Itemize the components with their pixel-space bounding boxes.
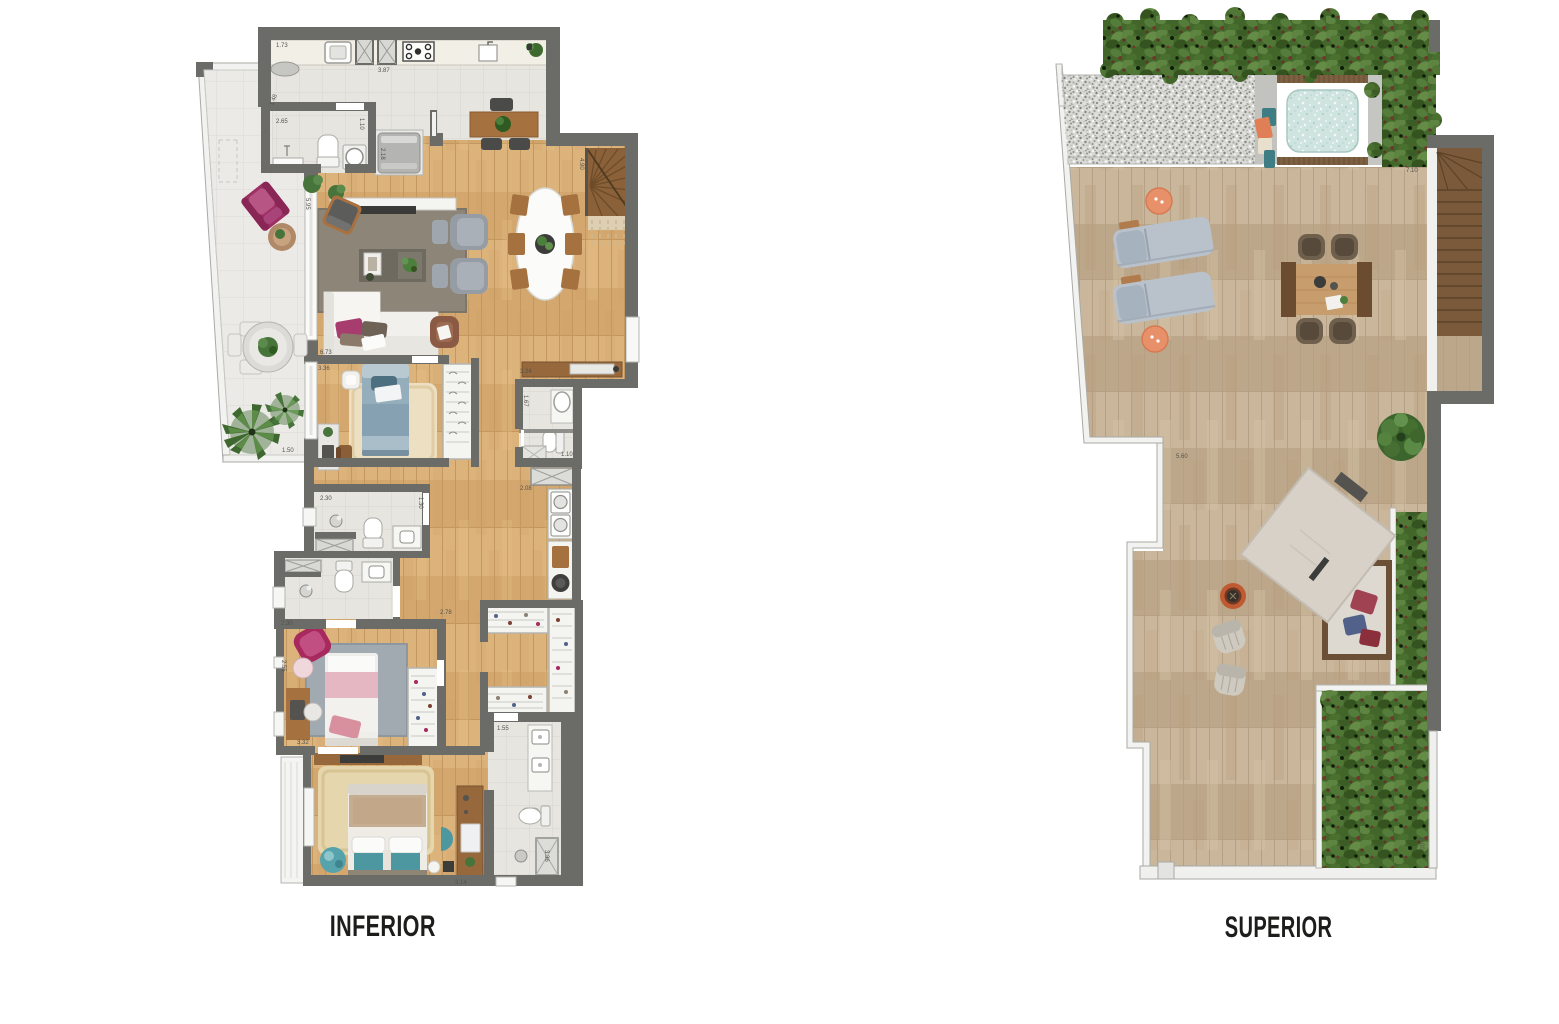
svg-text:3.14: 3.14 [455,880,467,886]
svg-text:2.55: 2.55 [280,660,286,672]
svg-text:1.50: 1.50 [282,448,294,454]
svg-text:2.30: 2.30 [320,496,332,502]
svg-text:3.36: 3.36 [318,366,330,372]
svg-text:3.87: 3.87 [378,68,390,74]
svg-text:7.10: 7.10 [1406,168,1418,174]
svg-text:1.73: 1.73 [276,43,288,49]
svg-text:1.10: 1.10 [561,452,573,458]
svg-text:SUPERIOR: SUPERIOR [1225,911,1333,944]
svg-text:3.36: 3.36 [543,850,549,862]
svg-text:2.18: 2.18 [379,148,385,160]
svg-text:6.00: 6.00 [1418,838,1424,850]
svg-text:4.90: 4.90 [578,158,584,170]
svg-text:5.95: 5.95 [304,198,310,210]
svg-text:3.24: 3.24 [520,369,532,375]
svg-text:1.10: 1.10 [358,118,364,130]
svg-text:1.30: 1.30 [417,497,423,509]
svg-text:2.30: 2.30 [281,621,293,627]
svg-text:5.60: 5.60 [1176,454,1188,460]
svg-text:1.55: 1.55 [497,726,509,732]
svg-text:2.08: 2.08 [520,486,532,492]
svg-text:INFERIOR: INFERIOR [330,908,436,942]
svg-text:2.78: 2.78 [440,610,452,616]
svg-text:2.65: 2.65 [276,119,288,125]
svg-text:6.73: 6.73 [320,350,332,356]
svg-text:1.67: 1.67 [522,395,528,407]
svg-text:3.32: 3.32 [297,740,309,746]
